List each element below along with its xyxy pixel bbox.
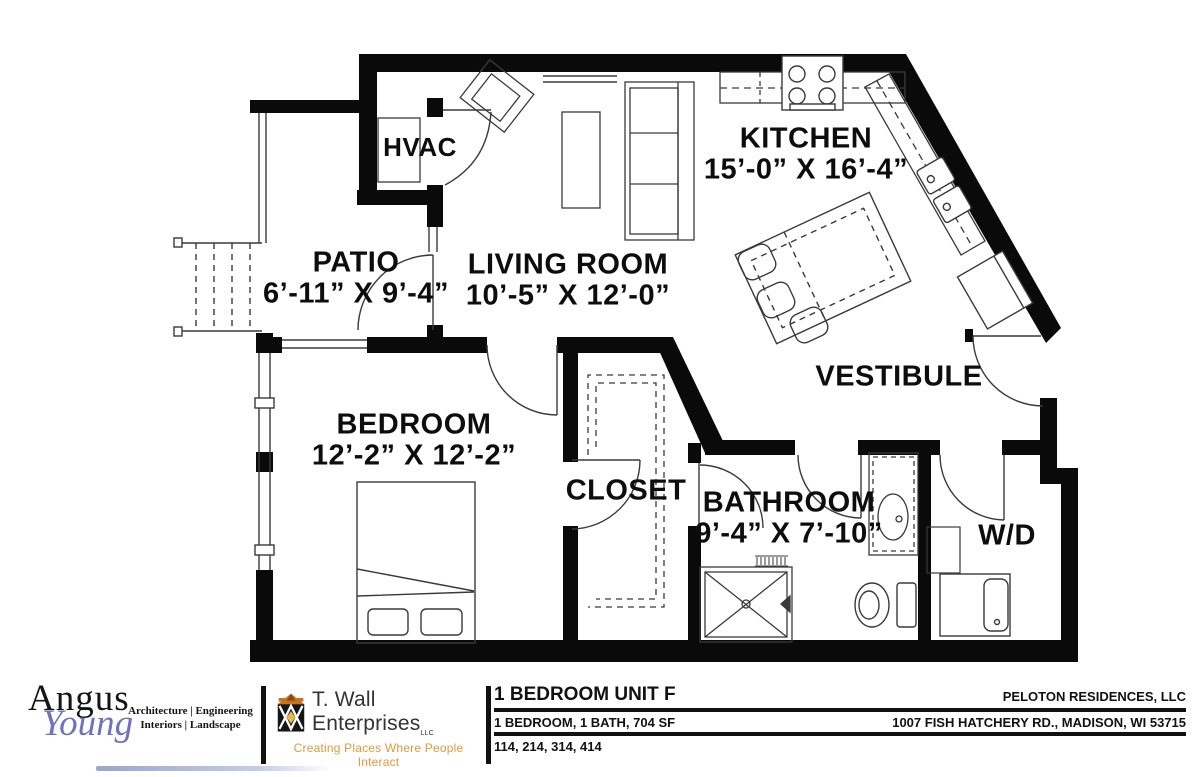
developer-address: 1007 FISH HATCHERY RD., MADISON, WI 5371… <box>892 715 1186 730</box>
footer-divider-1 <box>261 686 266 764</box>
angus-tagline-line2: Interiors | Landscape <box>128 718 253 732</box>
unit-info-rule-2 <box>494 732 1186 736</box>
twall-logo-name: T. Wall EnterprisesLLC <box>312 688 481 737</box>
room-label-closet: CLOSET <box>566 475 687 506</box>
room-label-living-room: LIVING ROOM 10’-5” X 12’-0” <box>466 250 670 313</box>
coffee-table-icon <box>562 112 600 208</box>
twall-logo: T. Wall EnterprisesLLC Creating Places W… <box>276 688 481 769</box>
footer-divider-2 <box>486 686 491 764</box>
room-label-kitchen: KITCHEN 15’-0” X 16’-4” <box>704 124 908 187</box>
title-block: Angus Young Architecture | Engineering I… <box>0 678 1200 777</box>
stove-icon <box>782 56 843 110</box>
floorplan-drawing <box>0 0 1200 680</box>
patio-stair-structure <box>174 238 262 336</box>
twall-logo-suffix: LLC <box>420 730 433 737</box>
kitchen-island-table <box>735 192 911 345</box>
room-label-wd: W/D <box>978 520 1036 551</box>
twall-tagline: Creating Places Where People Interact <box>276 741 481 769</box>
unit-spec: 1 BEDROOM, 1 BATH, 704 SF <box>494 715 675 730</box>
unit-title: 1 BEDROOM UNIT F <box>494 684 676 706</box>
floorplan-sheet: HVAC PATIO 6’-11” X 9’-4” LIVING ROOM 10… <box>0 0 1200 777</box>
twall-building-logo-icon <box>276 690 306 736</box>
walls <box>250 54 1078 662</box>
angus-tagline: Architecture | Engineering Interiors | L… <box>128 704 253 733</box>
room-label-patio: PATIO 6’-11” X 9’-4” <box>263 248 449 311</box>
shower-icon <box>700 556 792 642</box>
room-label-hvac: HVAC <box>383 133 457 161</box>
shower-door-track <box>755 556 788 566</box>
angus-tagline-line1: Architecture | Engineering <box>128 704 253 718</box>
sofa-icon <box>625 82 694 240</box>
unit-numbers: 114, 214, 314, 414 <box>494 739 602 754</box>
room-label-bathroom: BATHROOM 9’-4” X 7’-10” <box>695 488 883 551</box>
unit-info-rule-1 <box>494 708 1186 712</box>
unit-info-block: 1 BEDROOM UNIT F PELOTON RESIDENCES, LLC… <box>494 684 1186 754</box>
room-label-vestibule: VESTIBULE <box>815 361 982 392</box>
developer-name: PELOTON RESIDENCES, LLC <box>1003 689 1186 706</box>
room-label-bedroom: BEDROOM 12’-2” X 12’-2” <box>312 410 516 473</box>
toilet-icon <box>855 583 916 627</box>
bed-icon <box>357 482 475 643</box>
